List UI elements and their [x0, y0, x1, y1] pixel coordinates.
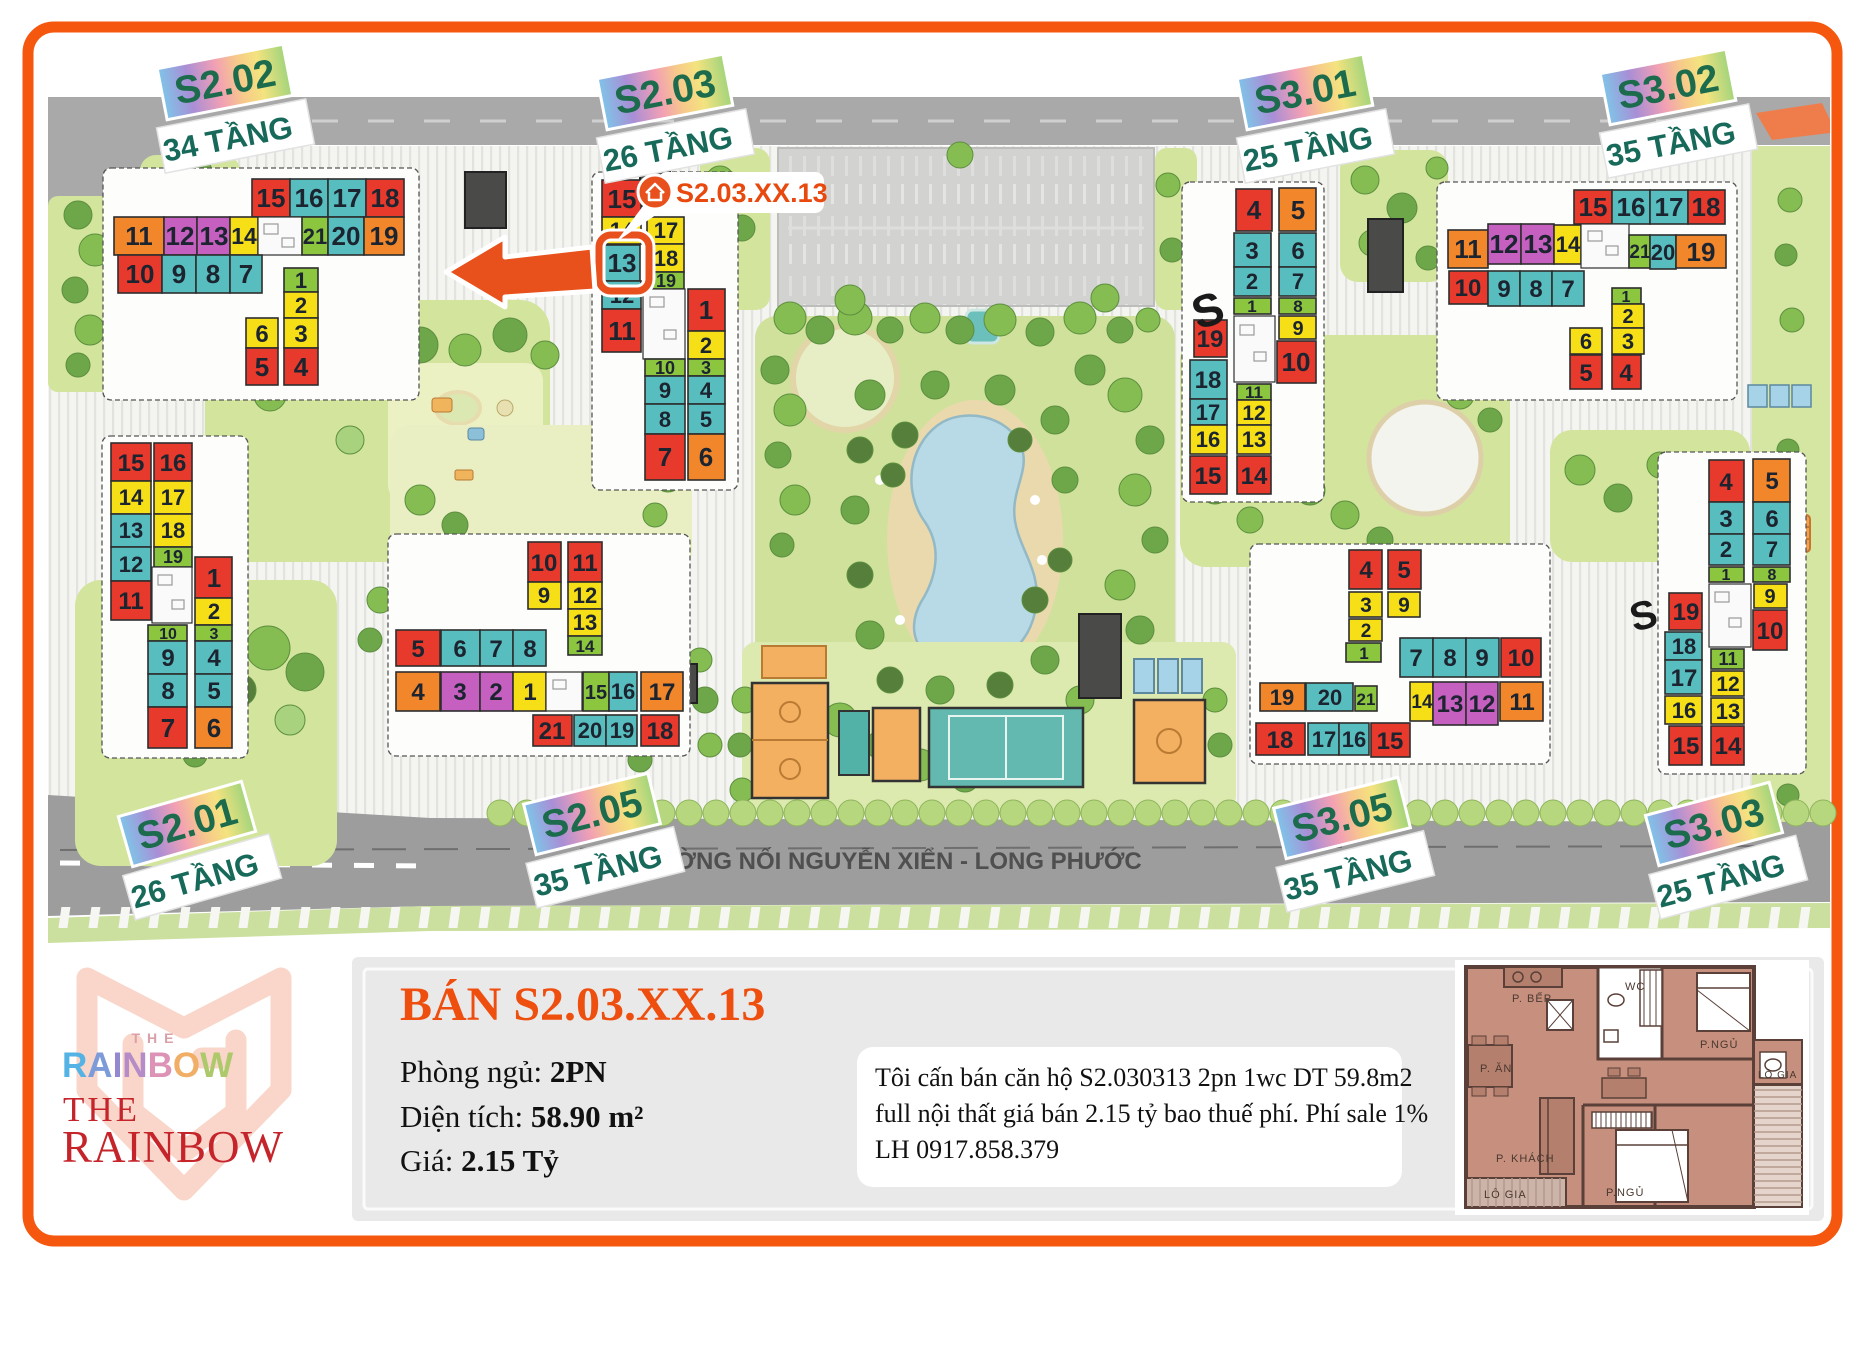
svg-text:8: 8	[523, 636, 536, 663]
svg-text:19: 19	[370, 221, 399, 251]
svg-text:WC: WC	[1625, 981, 1645, 993]
svg-text:S2.03.XX.13: S2.03.XX.13	[676, 178, 828, 208]
svg-text:THE: THE	[132, 1030, 181, 1046]
svg-text:3: 3	[1245, 238, 1258, 265]
svg-text:20: 20	[1318, 685, 1342, 710]
svg-text:3: 3	[701, 358, 711, 378]
svg-text:7: 7	[1409, 645, 1422, 672]
svg-text:5: 5	[411, 636, 424, 663]
svg-text:P.NGỦ: P.NGỦ	[1700, 1038, 1738, 1051]
svg-text:7: 7	[161, 713, 175, 743]
svg-text:14: 14	[231, 223, 257, 249]
svg-text:3: 3	[1719, 506, 1732, 533]
svg-text:17: 17	[1655, 192, 1684, 222]
svg-text:11: 11	[1509, 689, 1534, 716]
svg-text:18: 18	[371, 183, 400, 213]
svg-text:15: 15	[1195, 463, 1222, 490]
svg-text:10: 10	[126, 259, 155, 289]
svg-text:9: 9	[659, 378, 671, 403]
svg-text:14: 14	[576, 637, 595, 656]
svg-text:9: 9	[1764, 586, 1775, 608]
svg-text:6: 6	[1765, 506, 1778, 533]
svg-text:2: 2	[295, 293, 307, 318]
svg-text:12: 12	[1469, 691, 1496, 718]
svg-text:4: 4	[1247, 195, 1262, 225]
svg-text:19: 19	[1687, 237, 1716, 267]
svg-text:LH 0917.858.379: LH 0917.858.379	[875, 1135, 1059, 1164]
svg-text:18: 18	[1195, 367, 1222, 394]
svg-text:BÁN S2.03.XX.13: BÁN S2.03.XX.13	[400, 978, 765, 1031]
svg-text:19: 19	[656, 271, 676, 291]
svg-text:17: 17	[649, 679, 676, 706]
svg-text:2: 2	[1361, 621, 1372, 642]
svg-text:4: 4	[700, 378, 713, 403]
svg-text:8: 8	[1443, 645, 1456, 672]
svg-text:6: 6	[453, 636, 466, 663]
svg-text:4: 4	[1719, 469, 1733, 496]
svg-text:5: 5	[1579, 360, 1592, 387]
svg-text:10: 10	[1508, 645, 1535, 672]
svg-text:Giá: 2.15 Tỷ: Giá: 2.15 Tỷ	[400, 1143, 559, 1178]
svg-text:Tôi cấn bán căn hộ S2.030313 2: Tôi cấn bán căn hộ S2.030313 2pn 1wc DT …	[875, 1063, 1413, 1092]
svg-text:8: 8	[1768, 567, 1777, 584]
svg-text:12: 12	[166, 221, 195, 251]
svg-text:Phòng ngủ: 2PN: Phòng ngủ: 2PN	[400, 1054, 607, 1089]
svg-text:18: 18	[1692, 192, 1721, 222]
svg-text:5: 5	[1397, 557, 1410, 584]
svg-text:1: 1	[1722, 567, 1731, 584]
svg-text:6: 6	[207, 713, 221, 743]
svg-text:7: 7	[1561, 276, 1574, 303]
svg-text:6: 6	[255, 321, 268, 348]
svg-text:16: 16	[160, 450, 187, 477]
svg-text:13: 13	[1242, 427, 1266, 452]
svg-text:3: 3	[1622, 329, 1634, 354]
svg-text:17: 17	[1312, 727, 1336, 752]
svg-text:11: 11	[118, 588, 143, 615]
svg-text:14: 14	[1241, 463, 1268, 490]
svg-text:13: 13	[573, 610, 597, 635]
svg-text:16: 16	[611, 679, 635, 704]
svg-text:17: 17	[1671, 665, 1698, 692]
svg-text:10: 10	[655, 358, 675, 378]
svg-text:full nội thất giá bán 2.15 tỷ: full nội thất giá bán 2.15 tỷ bao thuế p…	[875, 1099, 1428, 1128]
svg-text:11: 11	[125, 221, 153, 251]
svg-text:13: 13	[119, 518, 143, 543]
svg-text:15: 15	[608, 184, 637, 214]
svg-text:5: 5	[700, 407, 712, 432]
svg-text:5: 5	[207, 678, 220, 705]
svg-text:9: 9	[538, 583, 550, 608]
svg-text:P.NGỦ: P.NGỦ	[1606, 1186, 1644, 1199]
svg-text:5: 5	[255, 352, 269, 382]
svg-text:2: 2	[1246, 269, 1258, 294]
svg-text:11: 11	[1245, 383, 1263, 402]
svg-text:4: 4	[1619, 360, 1633, 387]
svg-text:19: 19	[610, 718, 634, 743]
svg-text:15: 15	[1377, 728, 1404, 755]
svg-text:18: 18	[647, 718, 674, 745]
svg-text:LÔ GIA: LÔ GIA	[1484, 1188, 1527, 1201]
svg-text:15: 15	[1579, 192, 1608, 222]
svg-text:17: 17	[654, 218, 678, 243]
svg-text:18: 18	[1267, 727, 1294, 754]
svg-text:12: 12	[119, 552, 143, 577]
svg-text:10: 10	[1757, 618, 1784, 645]
svg-text:21: 21	[1629, 242, 1651, 263]
svg-text:10: 10	[1455, 275, 1482, 302]
svg-text:8: 8	[161, 678, 174, 705]
svg-text:17: 17	[1196, 400, 1220, 425]
svg-text:3: 3	[294, 321, 307, 348]
svg-text:RAINBOW: RAINBOW	[62, 1046, 233, 1085]
svg-text:12: 12	[1490, 229, 1519, 259]
svg-text:20: 20	[332, 221, 361, 251]
svg-text:4: 4	[207, 645, 221, 672]
svg-text:13: 13	[608, 248, 637, 278]
svg-text:2: 2	[208, 599, 220, 624]
svg-text:1: 1	[1247, 297, 1256, 316]
svg-text:9: 9	[161, 645, 174, 672]
svg-text:17: 17	[161, 485, 185, 510]
svg-text:4: 4	[294, 352, 309, 382]
svg-text:10: 10	[531, 550, 558, 577]
svg-text:12: 12	[1716, 673, 1739, 696]
svg-text:18: 18	[1672, 634, 1696, 659]
svg-text:ĐƯỜNG NỐI NGUYỄN XIỂN - LONG P: ĐƯỜNG NỐI NGUYỄN XIỂN - LONG PHƯỚC	[638, 846, 1141, 875]
svg-text:18: 18	[161, 518, 185, 543]
svg-text:15: 15	[257, 183, 286, 213]
svg-text:15: 15	[118, 450, 145, 477]
svg-text:21: 21	[1357, 690, 1376, 709]
svg-text:7: 7	[489, 636, 502, 663]
svg-text:15: 15	[585, 682, 607, 704]
svg-text:13: 13	[200, 221, 229, 251]
svg-text:1: 1	[699, 295, 713, 325]
svg-text:1: 1	[295, 268, 307, 293]
svg-text:16: 16	[1617, 192, 1646, 222]
svg-text:6: 6	[1291, 238, 1304, 265]
svg-text:8: 8	[206, 259, 220, 289]
svg-text:14: 14	[1411, 692, 1433, 713]
svg-text:10: 10	[1282, 347, 1311, 377]
svg-text:7: 7	[1292, 269, 1304, 294]
svg-text:9: 9	[1497, 276, 1510, 303]
svg-text:5: 5	[1765, 468, 1778, 495]
svg-text:P. ĂN: P. ĂN	[1480, 1062, 1512, 1075]
svg-text:14: 14	[1556, 232, 1581, 257]
svg-text:1: 1	[207, 563, 221, 593]
svg-text:Diện tích: 58.90 m²: Diện tích: 58.90 m²	[400, 1099, 643, 1134]
svg-text:9: 9	[172, 259, 186, 289]
svg-text:13: 13	[1716, 699, 1740, 724]
svg-text:15: 15	[1673, 733, 1700, 760]
svg-text:11: 11	[608, 316, 636, 346]
svg-text:6: 6	[1580, 329, 1592, 354]
svg-text:11: 11	[572, 550, 597, 577]
svg-text:11: 11	[1454, 234, 1482, 264]
svg-text:8: 8	[1529, 276, 1542, 303]
svg-text:3: 3	[1360, 594, 1372, 617]
svg-text:7: 7	[1766, 537, 1778, 562]
svg-text:LÔ GIA: LÔ GIA	[1758, 1068, 1797, 1081]
svg-text:21: 21	[303, 224, 327, 249]
svg-text:16: 16	[295, 183, 324, 213]
svg-text:19: 19	[1270, 685, 1294, 710]
svg-text:20: 20	[578, 718, 602, 743]
svg-text:13: 13	[1437, 691, 1464, 718]
svg-text:14: 14	[119, 485, 144, 510]
svg-text:21: 21	[539, 718, 566, 745]
svg-text:4: 4	[1359, 557, 1373, 584]
svg-text:13: 13	[1524, 229, 1553, 259]
svg-text:16: 16	[1196, 427, 1220, 452]
svg-text:9: 9	[1398, 594, 1410, 617]
svg-text:4: 4	[411, 679, 425, 706]
svg-text:12: 12	[1242, 402, 1265, 425]
svg-text:8: 8	[659, 407, 671, 432]
svg-text:RAINBOW: RAINBOW	[62, 1122, 284, 1172]
svg-text:9: 9	[1292, 318, 1303, 340]
svg-text:7: 7	[239, 259, 253, 289]
svg-text:2: 2	[700, 333, 712, 358]
svg-text:20: 20	[1651, 240, 1675, 265]
svg-text:9: 9	[1475, 645, 1488, 672]
svg-text:16: 16	[1342, 727, 1366, 752]
svg-text:3: 3	[453, 679, 466, 706]
svg-text:7: 7	[658, 442, 672, 472]
svg-text:17: 17	[333, 183, 362, 213]
svg-text:P. KHÁCH: P. KHÁCH	[1496, 1152, 1555, 1165]
svg-text:2: 2	[489, 679, 502, 706]
svg-text:19: 19	[163, 547, 183, 567]
svg-text:1: 1	[1359, 644, 1368, 663]
svg-text:12: 12	[573, 583, 597, 608]
svg-text:5: 5	[1291, 195, 1305, 225]
svg-text:19: 19	[1673, 599, 1700, 626]
svg-text:2: 2	[1720, 537, 1732, 562]
svg-text:18: 18	[654, 246, 678, 271]
svg-text:14: 14	[1715, 733, 1742, 760]
svg-text:16: 16	[1672, 698, 1696, 723]
svg-text:11: 11	[1718, 649, 1737, 669]
svg-text:2: 2	[1622, 306, 1633, 328]
svg-text:8: 8	[1293, 297, 1302, 316]
svg-text:P. BẾP: P. BẾP	[1512, 992, 1552, 1005]
svg-text:6: 6	[699, 442, 713, 472]
svg-text:1: 1	[523, 679, 536, 706]
